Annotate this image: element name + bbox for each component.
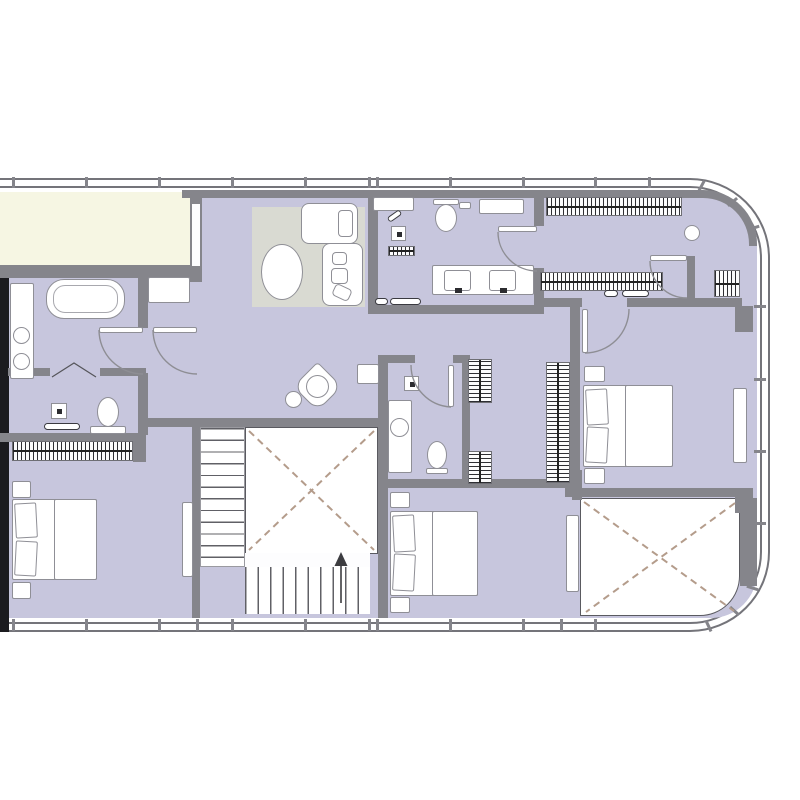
door-swing bbox=[498, 232, 537, 271]
door-swing bbox=[411, 365, 451, 407]
void-lower-right-cross bbox=[584, 502, 735, 612]
floor-plan bbox=[0, 0, 800, 800]
door-swing bbox=[153, 330, 197, 374]
door-swing bbox=[99, 330, 143, 374]
void-center-cross bbox=[249, 431, 374, 550]
door-swing bbox=[585, 309, 629, 353]
door-swing bbox=[650, 261, 687, 298]
plan-annotations bbox=[0, 0, 800, 800]
privacy-chevron bbox=[52, 363, 96, 377]
stair-arrow-head bbox=[335, 552, 348, 566]
